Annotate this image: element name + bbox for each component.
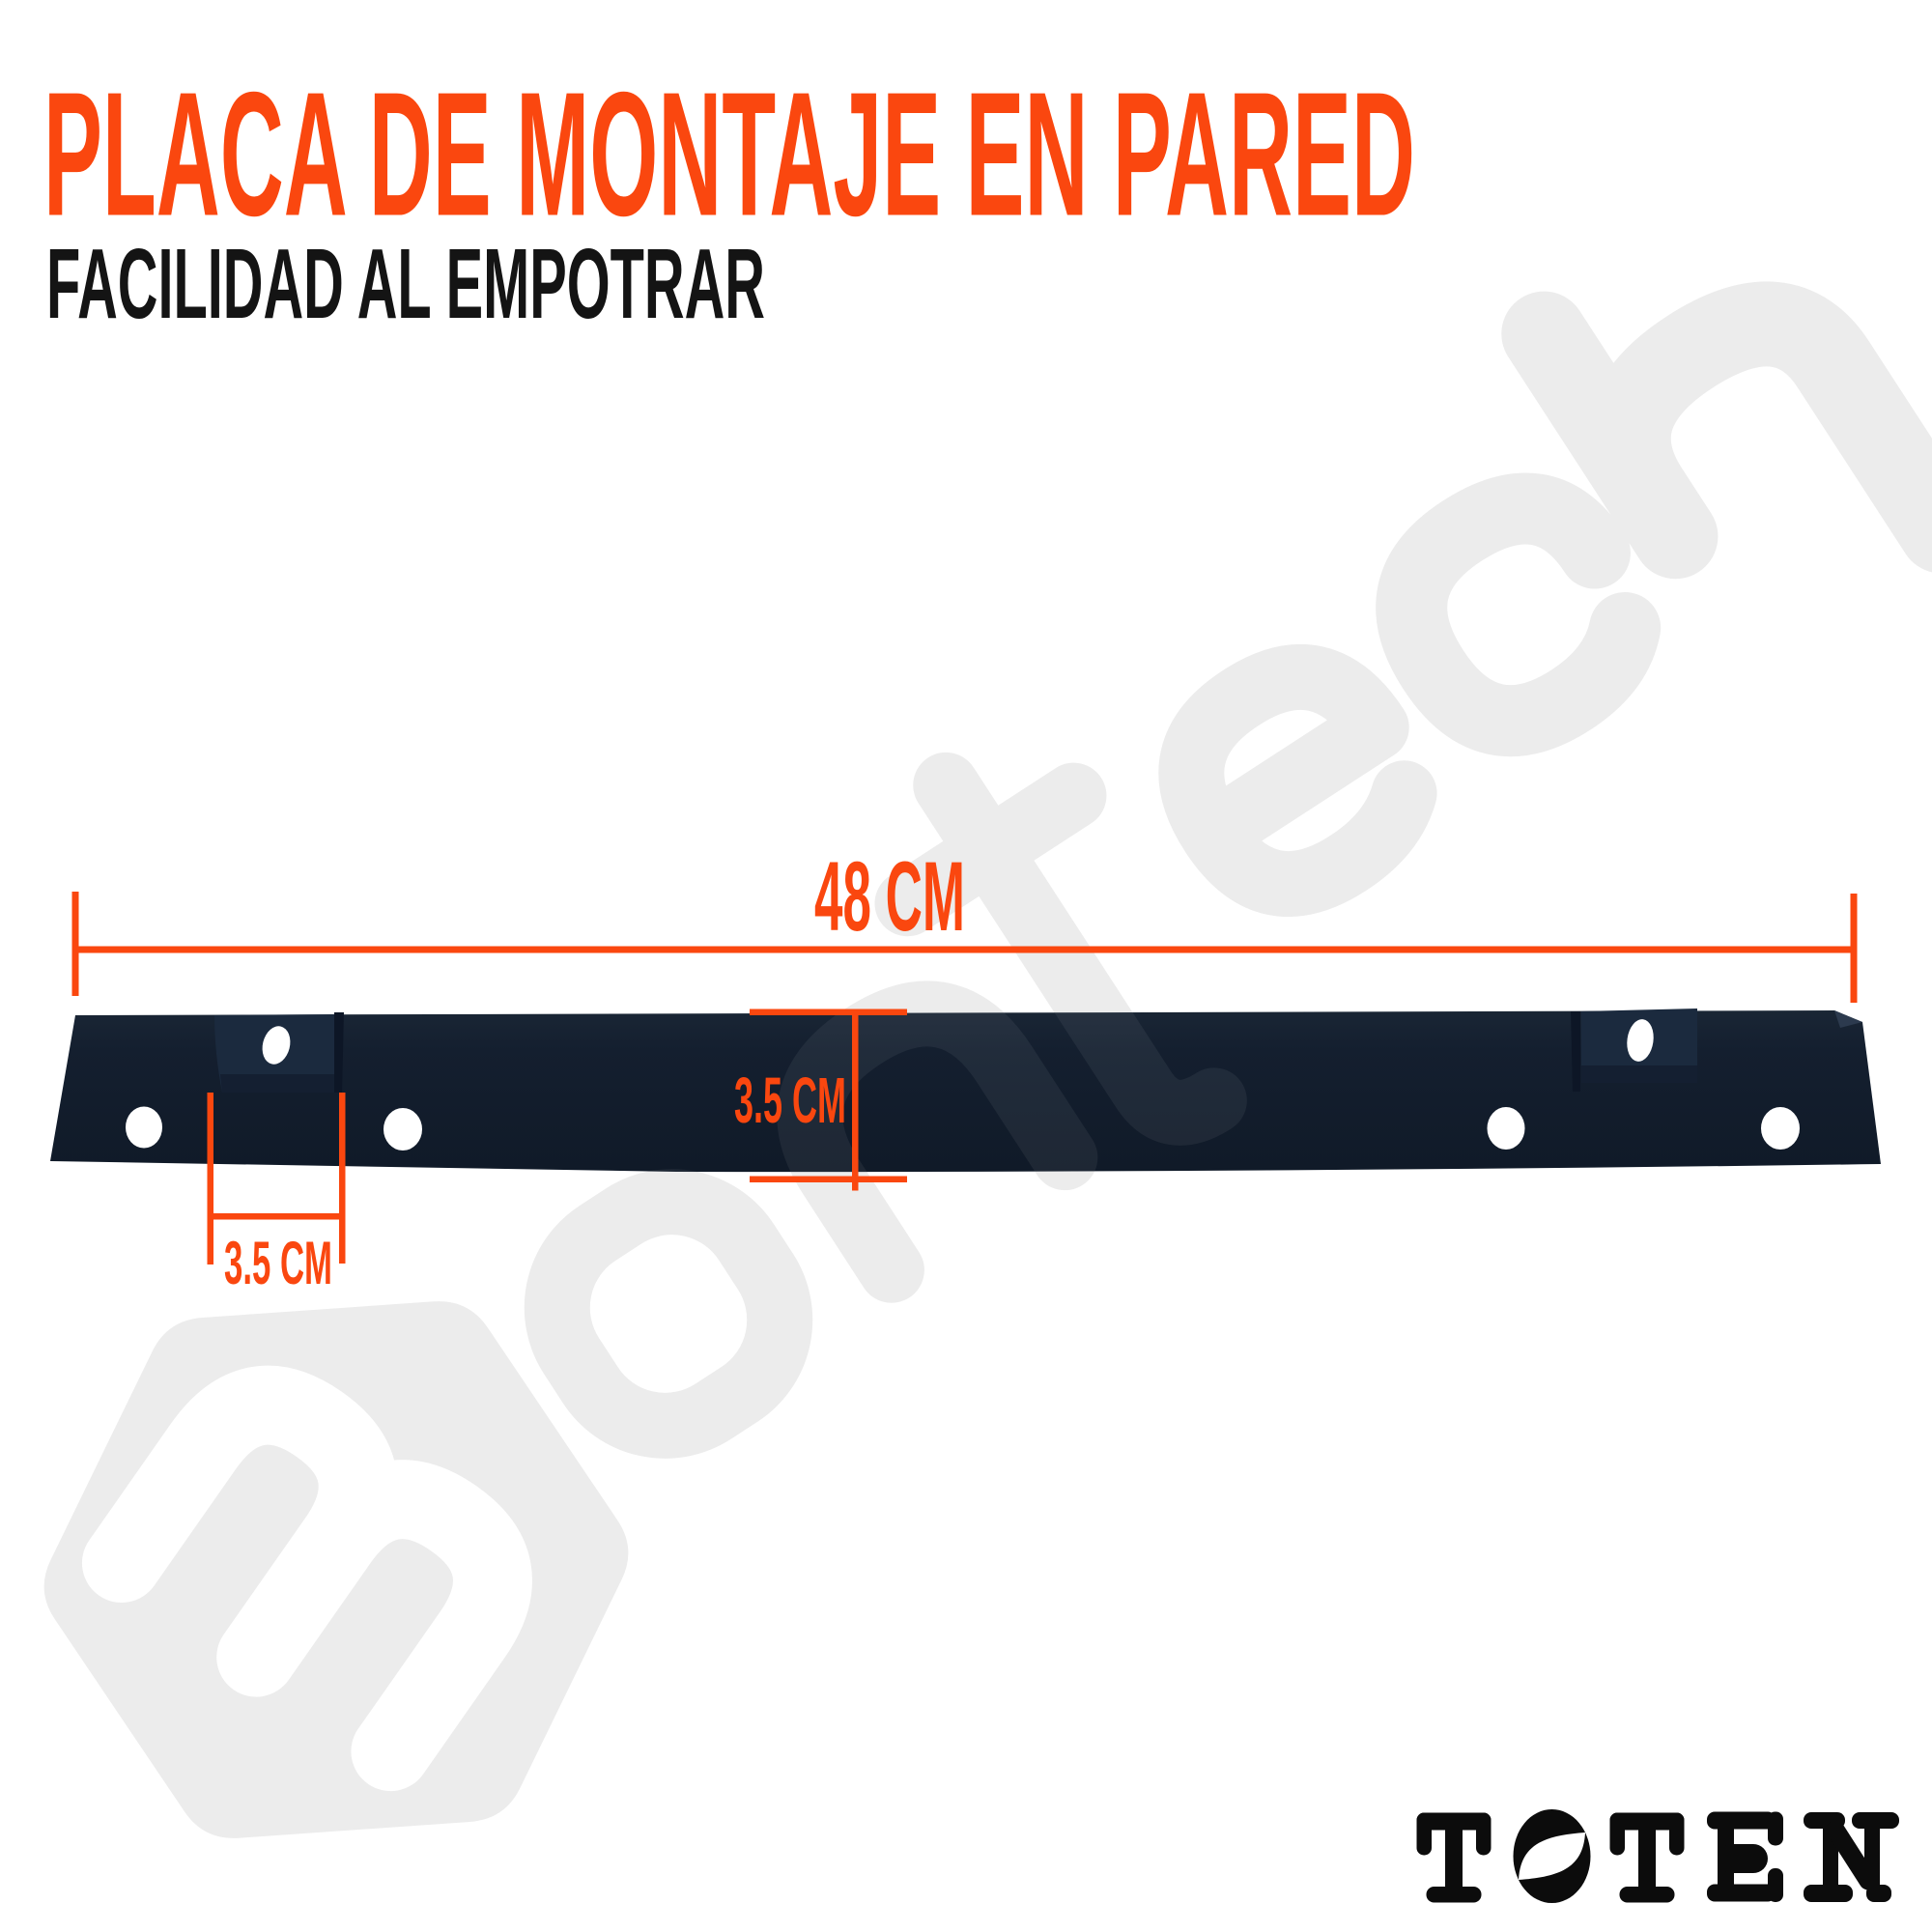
svg-text:PLACA DE MONTAJE EN PARED: PLACA DE MONTAJE EN PARED: [43, 55, 1415, 253]
svg-text:3.5 CM: 3.5 CM: [224, 1230, 332, 1297]
svg-text:48 CM: 48 CM: [814, 841, 965, 952]
svg-text:FACILIDAD AL EMPOTRAR: FACILIDAD AL EMPOTRAR: [46, 228, 765, 339]
svg-text:3.5 CM: 3.5 CM: [734, 1065, 846, 1137]
